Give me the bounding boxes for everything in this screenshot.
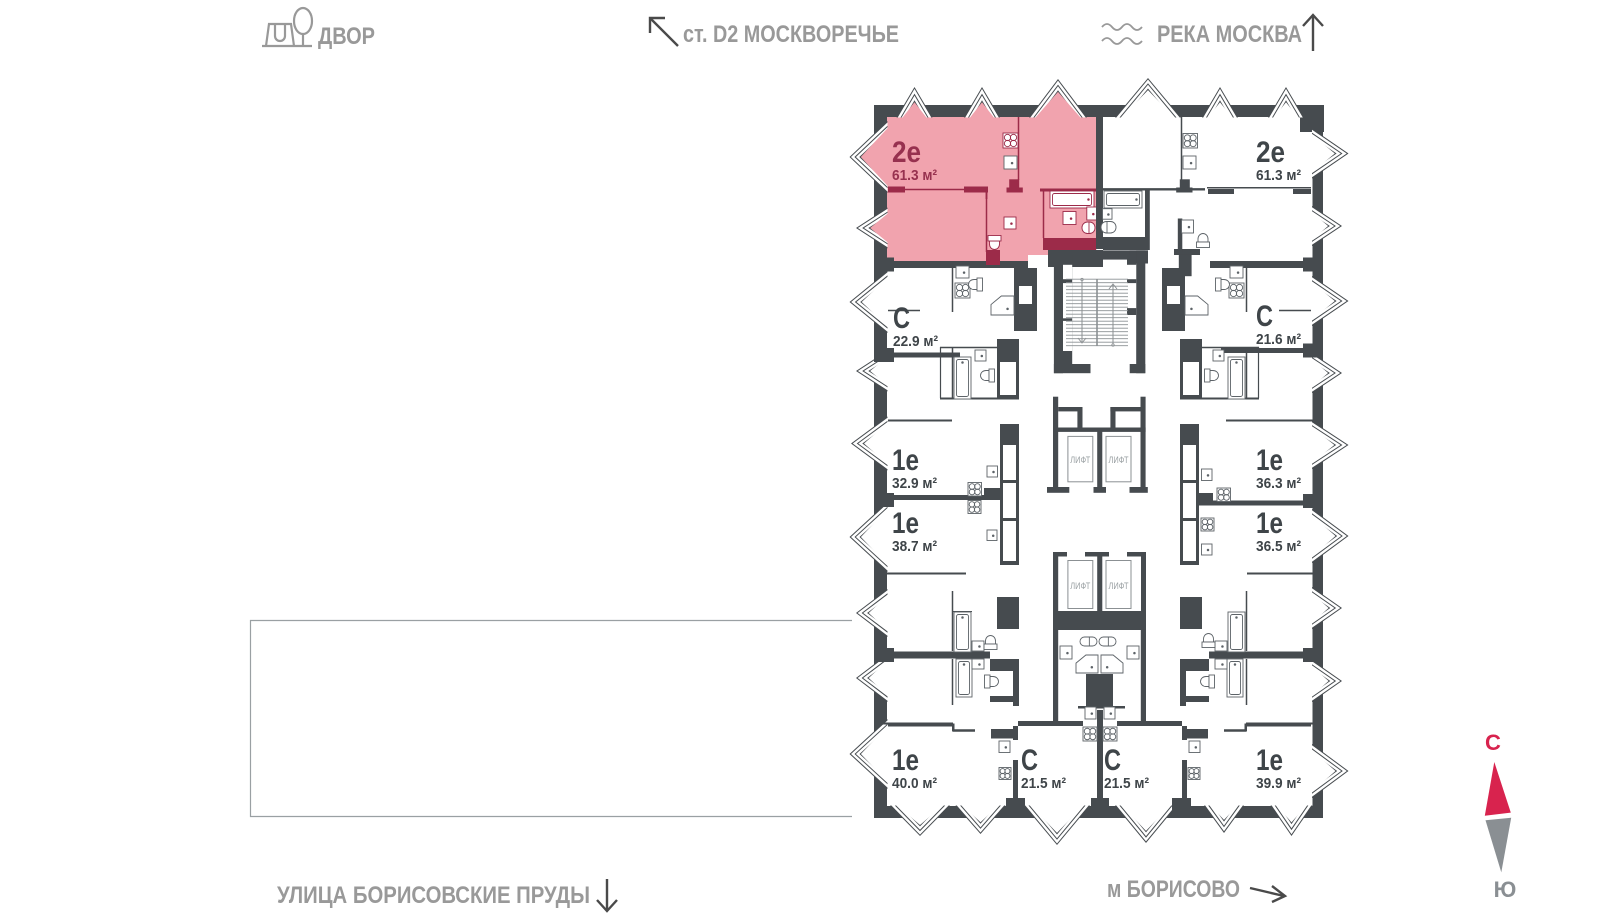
svg-text:36.5 м²: 36.5 м²	[1256, 538, 1301, 555]
svg-text:ст. D2 МОСКВОРЕЧЬЕ: ст. D2 МОСКВОРЕЧЬЕ	[683, 21, 899, 48]
svg-text:38.7 м²: 38.7 м²	[892, 538, 937, 555]
svg-text:39.9 м²: 39.9 м²	[1256, 775, 1301, 792]
svg-text:С: С	[1104, 744, 1121, 777]
svg-text:1е: 1е	[892, 444, 919, 477]
svg-text:С: С	[1485, 730, 1501, 755]
svg-text:ЛИФТ: ЛИФТ	[1109, 581, 1129, 591]
svg-text:С: С	[893, 302, 910, 335]
svg-text:2е: 2е	[1256, 136, 1285, 169]
svg-text:УЛИЦА БОРИСОВСКИЕ ПРУДЫ: УЛИЦА БОРИСОВСКИЕ ПРУДЫ	[277, 882, 590, 909]
svg-text:1е: 1е	[892, 744, 919, 777]
svg-text:1е: 1е	[1256, 507, 1283, 540]
svg-text:С: С	[1021, 744, 1038, 777]
svg-text:ДВОР: ДВОР	[318, 23, 375, 50]
svg-text:Ю: Ю	[1494, 877, 1517, 902]
svg-text:ЛИФТ: ЛИФТ	[1109, 455, 1129, 465]
svg-text:21.6 м²: 21.6 м²	[1256, 331, 1301, 348]
svg-text:м БОРИСОВО: м БОРИСОВО	[1107, 876, 1240, 903]
svg-text:ЛИФТ: ЛИФТ	[1070, 455, 1090, 465]
svg-text:61.3 м²: 61.3 м²	[1256, 167, 1301, 184]
svg-text:2е: 2е	[892, 136, 921, 169]
svg-text:21.5 м²: 21.5 м²	[1021, 775, 1066, 792]
svg-text:22.9 м²: 22.9 м²	[893, 333, 938, 350]
svg-text:ЛИФТ: ЛИФТ	[1070, 581, 1090, 591]
svg-text:21.5 м²: 21.5 м²	[1104, 775, 1149, 792]
svg-text:С: С	[1256, 300, 1273, 333]
svg-text:32.9 м²: 32.9 м²	[892, 475, 937, 492]
svg-text:1е: 1е	[1256, 744, 1283, 777]
svg-text:40.0 м²: 40.0 м²	[892, 775, 937, 792]
svg-text:61.3 м²: 61.3 м²	[892, 167, 937, 184]
svg-text:36.3 м²: 36.3 м²	[1256, 475, 1301, 492]
svg-text:1е: 1е	[1256, 444, 1283, 477]
svg-text:РЕКА МОСКВА: РЕКА МОСКВА	[1157, 21, 1302, 48]
svg-text:1е: 1е	[892, 507, 919, 540]
